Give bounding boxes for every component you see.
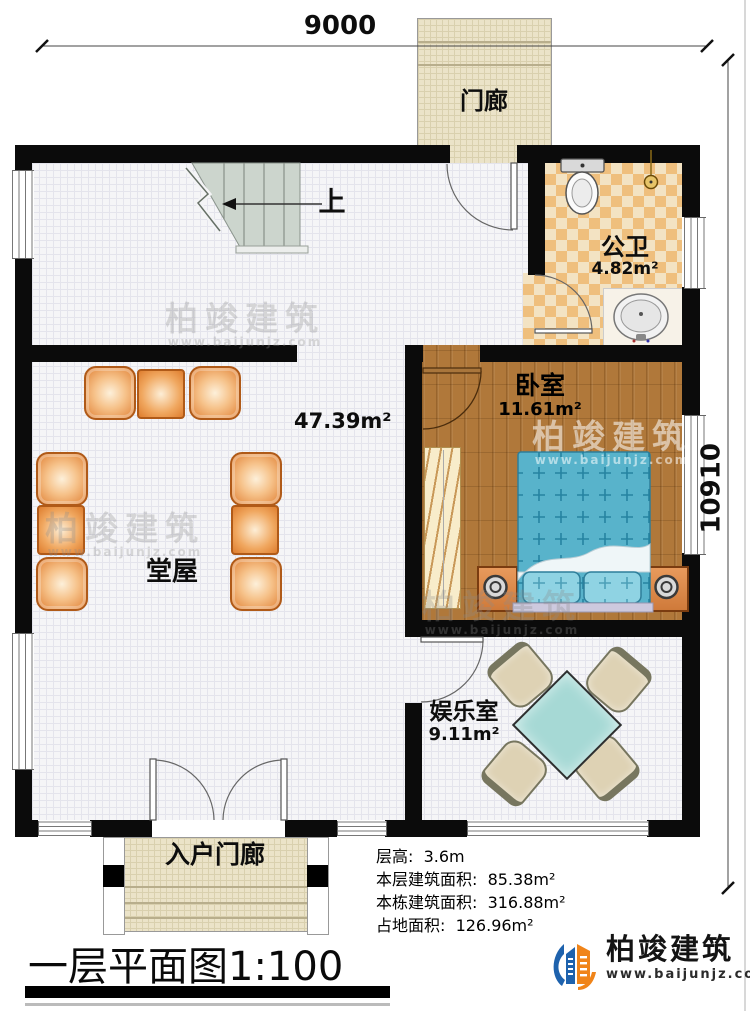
window-bottom-left <box>38 821 92 836</box>
wall-hall-divider-stub <box>15 345 297 362</box>
hall-chair <box>36 452 88 506</box>
drawing-title: 一层平面图1:100 <box>28 934 343 992</box>
room-label-entertainment: 娱乐室 9.11m² <box>414 700 514 745</box>
wall-left-2 <box>15 257 32 633</box>
room-label-bathroom: 公卫 4.82m² <box>580 234 670 279</box>
info-floor-height: 层高: 3.6m <box>376 845 566 868</box>
drawing-title-text: 一层平面图 <box>28 944 228 990</box>
wall-bedroom-bottom <box>405 620 700 637</box>
title-underline-thin <box>25 1003 390 1006</box>
info-block: 层高: 3.6m 本层建筑面积: 85.38m² 本栋建筑面积: 316.88m… <box>376 845 566 937</box>
wall-bedroom-top-corner <box>405 345 423 362</box>
wall-bottom-2 <box>90 820 152 837</box>
room-label-bedroom: 卧室 11.61m² <box>492 372 588 419</box>
entrance-step-line <box>124 902 308 904</box>
porch-step-line <box>418 41 551 43</box>
window-bottom-center <box>337 821 387 836</box>
wall-left-1 <box>15 145 32 173</box>
wall-bottom-4 <box>385 820 467 837</box>
bathroom-door-threshold <box>523 273 545 345</box>
info-floor-area: 本层建筑面积: 85.38m² <box>376 868 566 891</box>
entrance-step-line <box>124 886 308 888</box>
dimension-line-top <box>36 40 713 52</box>
porch-step-line <box>418 64 551 66</box>
room-label-porch: 门廊 <box>440 88 528 114</box>
room-area-hall: 47.39m² <box>294 410 404 433</box>
window-left-lower <box>12 633 34 770</box>
brand-logo-icon <box>548 932 600 996</box>
wall-right-1 <box>682 145 700 217</box>
wall-bottom-1 <box>15 820 38 837</box>
entrance-column-block-left <box>103 865 124 887</box>
room-label-hall: 堂屋 <box>146 558 256 587</box>
bathroom-sink-counter <box>603 288 683 346</box>
hall-chair <box>189 366 241 420</box>
window-bathroom-right <box>684 217 706 289</box>
brand-website: www.baijunjz.com <box>606 967 750 982</box>
nightstand-right <box>648 566 689 612</box>
wall-bottom-5 <box>647 820 700 837</box>
brand-name: 柏竣建筑 <box>606 932 750 967</box>
dimension-right-label: 10910 <box>698 436 727 540</box>
dimension-top-label: 9000 <box>298 12 382 41</box>
entrance-step-line <box>124 917 308 919</box>
hall-side-table <box>137 369 185 419</box>
title-underline-thick <box>25 986 390 998</box>
wall-top-left <box>15 145 450 163</box>
wall-bathroom-left <box>528 145 545 275</box>
hall-chair <box>230 452 282 506</box>
nightstand-left <box>477 566 518 612</box>
room-label-entrance-porch: 入户门廊 <box>137 841 293 869</box>
info-footprint-area: 占地面积: 126.96m² <box>376 914 566 937</box>
floor-plan-page: 柏竣建筑 www.baijunjz.com 柏竣建筑 www.baijunjz.… <box>0 0 750 1011</box>
wall-bottom-3 <box>285 820 337 837</box>
hall-side-table <box>37 505 85 555</box>
hall-chair <box>84 366 136 420</box>
wardrobe <box>424 447 461 609</box>
entrance-column-block-right <box>307 865 328 887</box>
stairs-up-label: 上 <box>312 188 352 218</box>
drawing-scale: 1:100 <box>228 944 343 990</box>
window-entertainment-bottom <box>467 821 649 836</box>
wall-bedroom-left <box>405 345 422 637</box>
brand-logo: 柏竣建筑 www.baijunjz.com <box>548 932 750 996</box>
hall-chair <box>36 557 88 611</box>
hall-side-table <box>231 505 279 555</box>
window-left-upper <box>12 170 34 259</box>
wall-bedroom-top <box>480 345 700 362</box>
info-building-area: 本栋建筑面积: 316.88m² <box>376 891 566 914</box>
